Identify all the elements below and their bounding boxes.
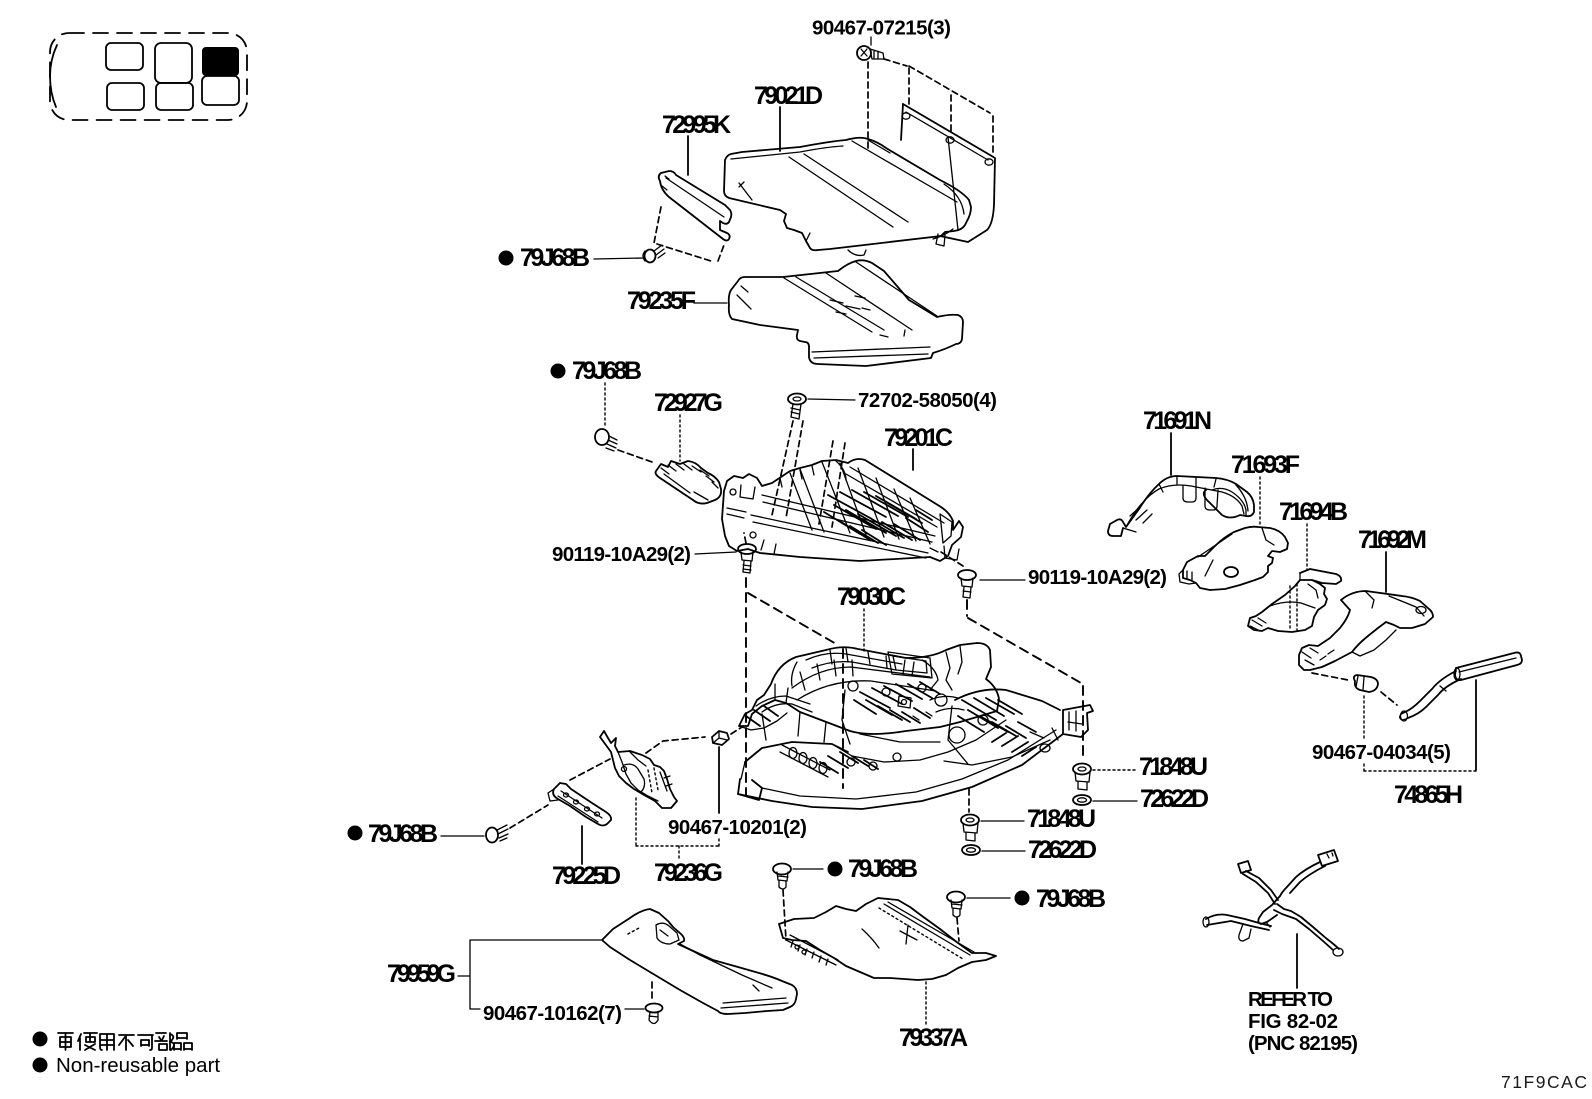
svg-text:72702-58050(4): 72702-58050(4) (858, 389, 997, 412)
svg-text:FIG 82-02: FIG 82-02 (1248, 1010, 1338, 1033)
svg-text:79225D: 79225D (552, 862, 621, 890)
svg-text:79235F: 79235F (627, 287, 696, 315)
svg-text:90119-10A29(2): 90119-10A29(2) (1028, 566, 1167, 589)
svg-text:79J68B: 79J68B (520, 244, 590, 272)
svg-text:79201C: 79201C (884, 424, 953, 452)
svg-text:79236G: 79236G (654, 859, 723, 887)
svg-text:79959G: 79959G (387, 960, 456, 988)
svg-text:90467-07215(3): 90467-07215(3) (812, 17, 951, 40)
svg-text:Non-reusable part: Non-reusable part (56, 1054, 220, 1077)
svg-text:79021D: 79021D (754, 82, 823, 110)
svg-text:72927G: 72927G (654, 389, 723, 417)
svg-text:71848U: 71848U (1027, 805, 1096, 833)
svg-text:90467-10162(7): 90467-10162(7) (483, 1002, 622, 1025)
svg-text:79J68B: 79J68B (848, 855, 918, 883)
svg-text:71691N: 71691N (1143, 407, 1212, 435)
svg-text:72622D: 72622D (1028, 836, 1097, 864)
svg-text:(PNC 82195): (PNC 82195) (1248, 1032, 1358, 1055)
svg-text:71694B: 71694B (1279, 498, 1348, 526)
svg-text:REFER TO: REFER TO (1248, 988, 1333, 1011)
svg-text:79337A: 79337A (899, 1024, 968, 1052)
svg-text:72622D: 72622D (1140, 785, 1209, 813)
svg-text:74865H: 74865H (1394, 781, 1463, 809)
svg-text:90467-04034(5): 90467-04034(5) (1312, 741, 1451, 764)
svg-text:79J68B: 79J68B (572, 357, 642, 385)
svg-text:90467-10201(2): 90467-10201(2) (668, 816, 807, 839)
svg-text:71F9CAC: 71F9CAC (1501, 1072, 1587, 1092)
svg-text:71693F: 71693F (1231, 451, 1300, 479)
svg-text:79J68B: 79J68B (368, 820, 438, 848)
svg-text:71848U: 71848U (1139, 753, 1208, 781)
svg-text:90119-10A29(2): 90119-10A29(2) (552, 543, 691, 566)
svg-text:79030C: 79030C (837, 583, 906, 611)
svg-text:72995K: 72995K (662, 111, 731, 139)
svg-text:79J68B: 79J68B (1036, 885, 1106, 913)
svg-text:71692M: 71692M (1358, 526, 1427, 554)
